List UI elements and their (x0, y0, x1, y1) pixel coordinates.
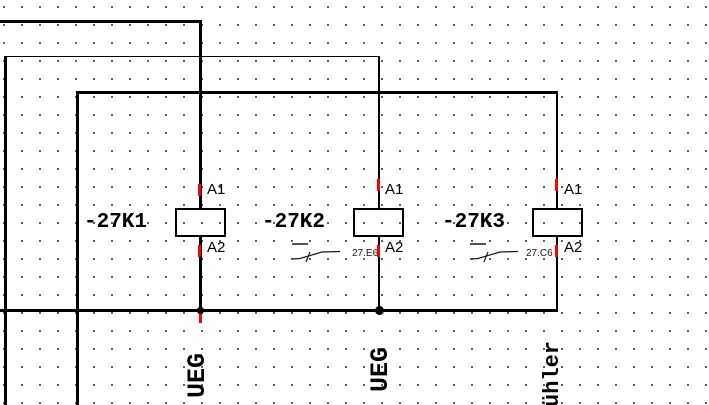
contact-crossref-k3[interactable] (468, 240, 524, 264)
terminal-label-a2-k2: A2 (385, 241, 403, 255)
connection-point-marker (199, 314, 202, 323)
wire-feed3-horizontal[interactable] (76, 91, 558, 94)
device-tag-k2[interactable]: -27K2 (262, 212, 325, 233)
connection-point-marker (555, 245, 558, 257)
wire-feed2-vertical-left[interactable] (4, 56, 7, 405)
terminal-label-a1-k3: A1 (564, 183, 582, 197)
crossref-text-k3[interactable]: 27.C6 (526, 249, 553, 259)
terminal-label-a1-k2: A1 (385, 183, 403, 197)
terminal-label-a2-k1: A2 (207, 241, 225, 255)
device-tag-k1[interactable]: -27K1 (84, 212, 147, 233)
no-contact-icon (290, 240, 346, 264)
device-tag-k3[interactable]: -27K3 (442, 212, 505, 233)
wire-label-ueg-2[interactable]: UEG (368, 347, 393, 392)
contact-crossref-k2[interactable] (290, 240, 346, 264)
no-contact-icon (468, 240, 524, 264)
wire-label-ueg-1[interactable]: UEG (185, 353, 210, 398)
terminal-label-a2-k3: A2 (564, 241, 582, 255)
wire-feed1-horizontal[interactable] (0, 20, 202, 23)
connection-point-marker (198, 245, 201, 257)
coil-k2-symbol[interactable] (353, 208, 404, 237)
connection-point-marker (377, 179, 380, 191)
connection-point-marker (555, 179, 558, 191)
schematic-canvas[interactable]: -27K1 A1 A2 -27K2 A1 A2 27.E6 -27K3 A1 A… (0, 0, 709, 405)
coil-k3-symbol[interactable] (532, 208, 583, 237)
wire-label-uehler[interactable]: ühler (542, 341, 564, 405)
coil-k1-symbol[interactable] (175, 208, 226, 237)
junction-dot-k2 (375, 306, 384, 315)
wire-feed2-horizontal[interactable] (4, 56, 380, 57)
crossref-text-k2[interactable]: 27.E6 (352, 249, 378, 259)
wire-bottom-bus[interactable] (0, 309, 558, 312)
connection-point-marker (198, 184, 201, 196)
wire-k1-vertical-upper[interactable] (199, 20, 202, 208)
terminal-label-a1-k1: A1 (207, 183, 225, 197)
wire-feed3-vertical-left[interactable] (76, 91, 79, 405)
